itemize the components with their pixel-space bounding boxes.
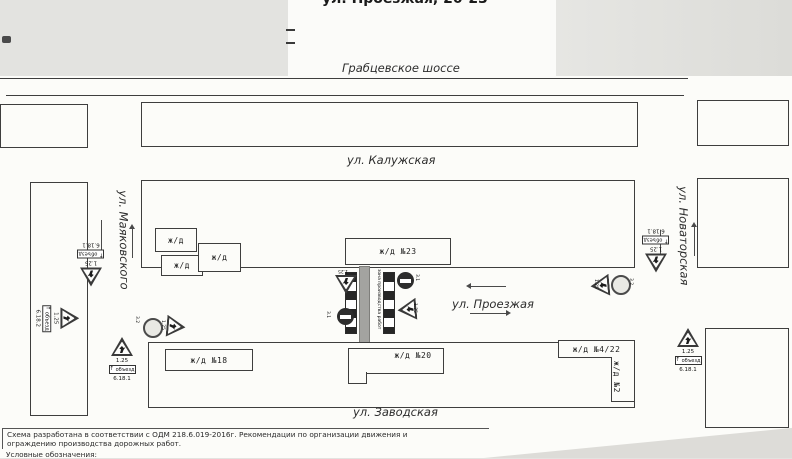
sign-number: 1.25	[682, 349, 694, 355]
up-arrow-icon: ↑	[110, 367, 115, 372]
city-block-left-column	[30, 182, 88, 416]
work-zone-trench	[359, 266, 370, 348]
work-zone-caption: зона производства работ	[376, 269, 381, 329]
warning-triangle-icon	[335, 275, 357, 294]
roadworks-sign-1-25-icon	[166, 315, 187, 339]
detour-plate-label: объезд	[44, 312, 50, 331]
street-label-proezzhaya: ул. Проезжая	[452, 297, 534, 311]
sign-number: 6.18.1	[113, 376, 131, 382]
building-label: ж/д	[212, 253, 228, 262]
footer-line-2: ограждению производства дорожных работ.	[7, 440, 489, 449]
sign-number: 1.25	[53, 312, 59, 324]
sign-number: 3.2	[134, 316, 139, 323]
building-house-23: ж/д №23	[345, 238, 451, 265]
sign-group-mayakovskogo: 1.25 ↑ объезд 6.18.1	[76, 242, 106, 287]
city-block	[697, 100, 789, 146]
roadworks-sign-1-25-icon	[111, 337, 133, 356]
sign-number: 3.2	[628, 278, 633, 285]
no-entry-sign-3-1-icon	[397, 272, 414, 289]
sign-number: 1.25	[160, 320, 165, 330]
detour-plate-6-18-icon: ↑ объезд	[643, 236, 670, 245]
warning-triangle-icon	[166, 315, 187, 339]
road-edge-grabtsevskoe-top	[0, 78, 688, 79]
roadworks-sign-1-25-icon	[80, 268, 102, 287]
scan-mark-blob	[2, 36, 11, 43]
no-entry-sign-3-1-icon	[337, 308, 354, 325]
building-house-20-wing	[348, 372, 367, 384]
street-label-kaluzhskaya: ул. Калужская	[347, 153, 435, 167]
sign-number: 6.18.2	[35, 310, 41, 328]
sign-number: 1.25	[85, 260, 97, 266]
sign-number: 1.25	[338, 268, 348, 273]
building-small-house: ж/д	[161, 255, 203, 276]
building-label: ж/д №4/22	[573, 345, 621, 354]
building-house-18: ж/д №18	[165, 349, 253, 371]
building-small-house: ж/д	[198, 243, 241, 272]
detour-plate-6-18-icon: ↑ объезд	[675, 356, 702, 365]
street-label-mayakovskogo: ул. Маяковского	[116, 190, 132, 290]
street-label-novatorskaya: ул. Новаторская	[676, 186, 692, 285]
building-small-house: ж/д	[155, 228, 197, 252]
traffic-arrow-up-icon	[694, 224, 695, 256]
building-label: ж/д №23	[379, 247, 416, 256]
building-label: ж/д	[168, 236, 184, 245]
sign-number: 6.18.1	[647, 228, 665, 234]
city-block-right-column	[705, 328, 789, 428]
building-label: ж/д №20	[394, 351, 431, 360]
scan-background-top-right	[555, 0, 792, 76]
roadworks-sign-1-25-icon	[645, 254, 667, 273]
sign-group-novatorskaya: 1.25 ↑ объезд 6.18.1	[641, 228, 671, 273]
sign-number: 1.25	[593, 279, 598, 289]
traffic-arrow-up-icon	[132, 226, 133, 258]
up-arrow-icon: ↑	[99, 252, 104, 257]
footer-note: Схема разработана в соответствии с ОДМ 2…	[2, 428, 489, 449]
traffic-arrow-right-icon	[470, 313, 508, 314]
sign-group-zavodskaya-west: 1.25 ↑ объезд 6.18.1	[107, 337, 137, 382]
street-label-zavodskaya: ул. Заводская	[353, 405, 438, 419]
detour-plate-label: объезд	[682, 358, 701, 364]
detour-plate-6-18-icon: ↑ объезд	[109, 365, 136, 374]
up-arrow-icon: ↑	[44, 306, 49, 311]
detour-plate-6-18-icon: ↑ объезд	[78, 250, 105, 259]
up-arrow-icon: ↑	[676, 358, 681, 363]
detour-plate-6-18-icon: ↑ объезд	[42, 305, 51, 332]
roadworks-sign-1-25-icon	[335, 275, 357, 294]
scan-mark-dash	[286, 29, 295, 31]
detour-plate-label: объезд	[644, 237, 663, 243]
sign-number: 3.1	[325, 311, 330, 318]
sign-number: 6.18.1	[82, 242, 100, 248]
road-edge-grabtsevskoe-bottom	[6, 95, 684, 96]
sign-number: 6.18.1	[679, 367, 697, 373]
up-arrow-icon: ↑	[664, 238, 669, 243]
city-block	[0, 104, 88, 148]
building-house-20: ж/д №20	[348, 348, 444, 374]
roadworks-sign-1-25-icon	[677, 328, 699, 347]
page-title: ул. Проезжая, 20-23	[322, 0, 488, 7]
sign-number: 3.1	[414, 274, 419, 281]
traffic-arrow-left-icon	[468, 286, 506, 287]
sign-number: 1.25	[116, 358, 128, 364]
scan-mark-dash	[286, 42, 295, 44]
sign-number: 1.25	[412, 303, 417, 313]
building-label: ж/д	[174, 261, 190, 270]
detour-plate-label: объезд	[79, 251, 98, 257]
city-block	[697, 178, 789, 268]
building-label: ж/д №18	[190, 356, 227, 365]
roadworks-sign-1-25-icon	[60, 307, 79, 329]
sign-group-zavodskaya-east: 1.25 ↑ объезд 6.18.1	[673, 328, 703, 373]
building-house-4-22: ж/д №4/22	[558, 340, 635, 358]
detour-plate-label: объезд	[116, 367, 135, 373]
sign-number: 1.25	[650, 246, 662, 252]
street-label-grabtsevskoe: Грабцевское шоссе	[342, 61, 460, 75]
building-label: ж/д №2	[612, 361, 621, 393]
building-label-vertical: ж/д №2	[610, 361, 629, 393]
scan-background-top-left	[0, 0, 289, 76]
work-zone-barrier-right	[383, 272, 395, 334]
city-block	[141, 102, 638, 147]
sign-group-proezzhaya-west: 1.25 ↑ объезд 6.18.2	[35, 303, 80, 333]
scanned-road-works-scheme: { "title": "ул. Проезжая, 20-23", "stree…	[0, 0, 792, 458]
